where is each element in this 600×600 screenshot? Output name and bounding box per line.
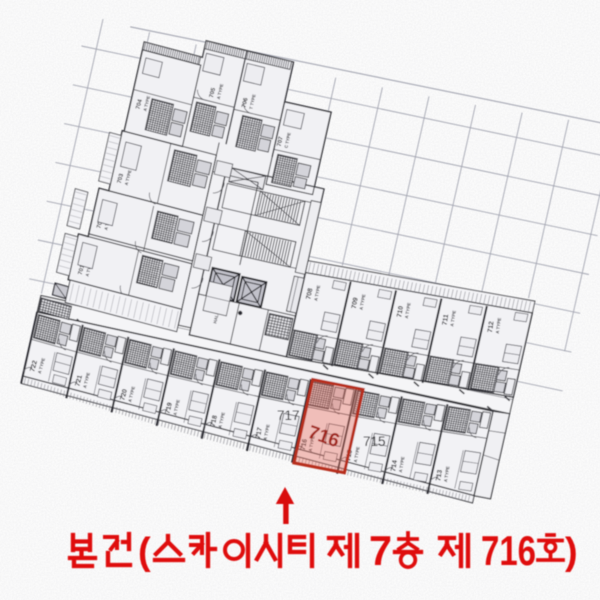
svg-text:716: 716 xyxy=(481,527,536,574)
svg-text:717: 717 xyxy=(277,408,300,423)
svg-text:7: 7 xyxy=(369,527,392,574)
svg-text:): ) xyxy=(565,531,578,573)
svg-text:715: 715 xyxy=(363,434,386,449)
svg-text:(: ( xyxy=(138,531,151,573)
